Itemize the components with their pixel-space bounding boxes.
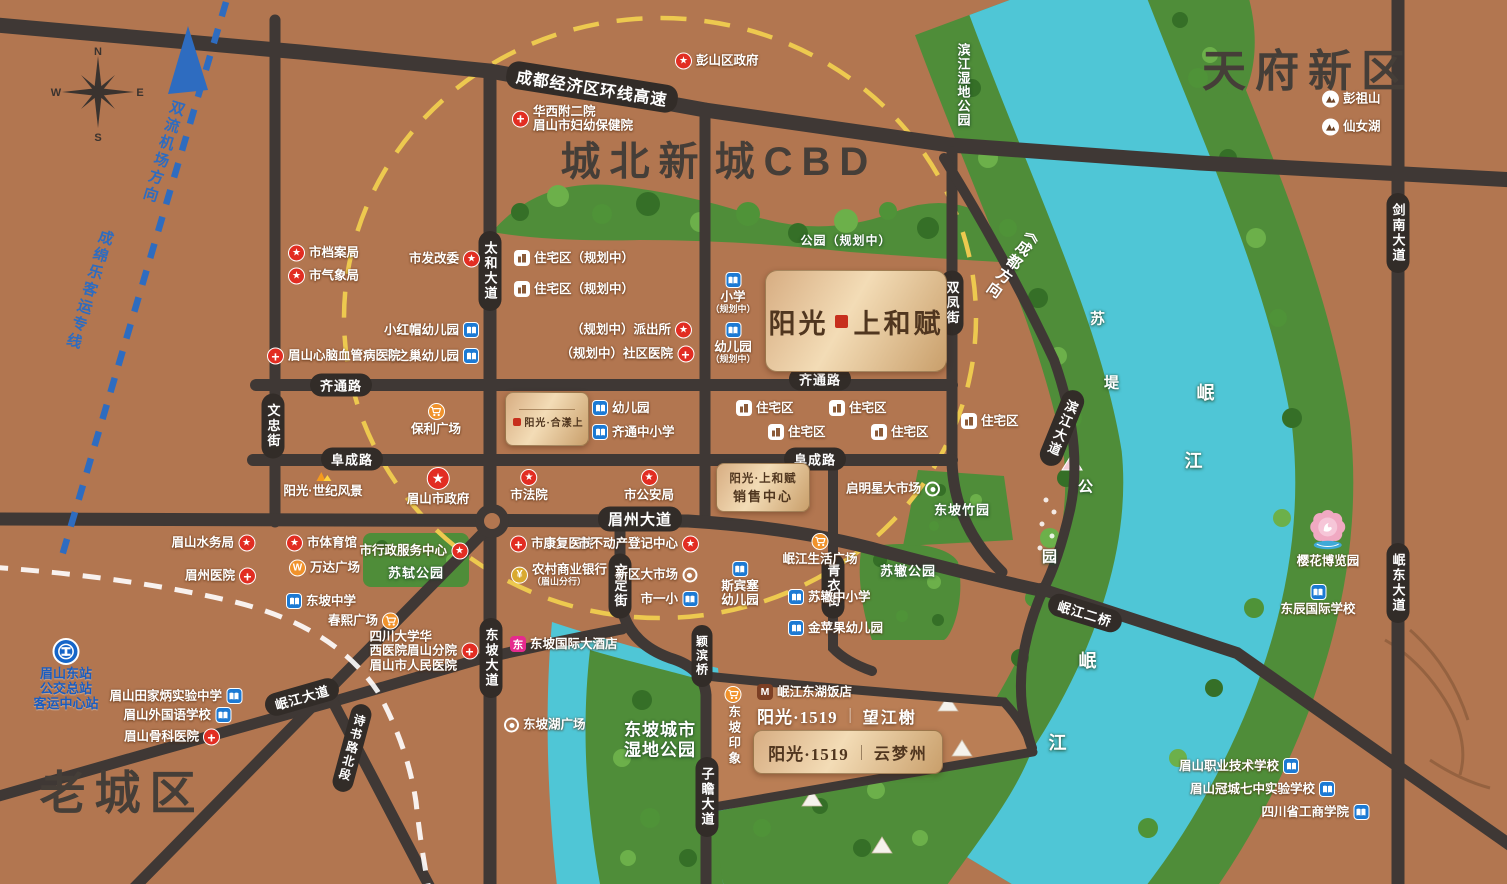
poi-label: 岷江生活广场 — [782, 552, 857, 566]
school-icon — [226, 688, 242, 704]
residence-icon — [514, 281, 530, 297]
school-icon — [463, 322, 479, 338]
road-label: 岷 — [1197, 379, 1216, 405]
poi-label: 市气象局 — [309, 269, 359, 283]
map-poi: 眉州医院+ — [185, 568, 256, 585]
shopping-cart-icon — [382, 613, 399, 630]
poi-label: 住宅区 — [891, 425, 929, 439]
map-poi: 幼儿园 — [592, 400, 650, 416]
poi-label: 万达广场 — [310, 561, 360, 575]
map-poi: 市行政服务中心★ — [359, 543, 468, 560]
road-label: 岷江大道 — [262, 675, 341, 718]
school-icon — [463, 348, 479, 364]
map-poi: 启明星大市场 — [846, 482, 940, 497]
school-icon — [1310, 584, 1326, 600]
plate-text: 上和赋 — [854, 302, 944, 341]
poi-label: 彭祖山 — [1343, 92, 1381, 106]
poi-label: 农村商业银行（眉山分行） — [532, 563, 607, 588]
map-poi: 眉山外国语学校 — [123, 707, 231, 723]
shopping-cart-icon — [811, 533, 828, 550]
road-label: 东坡大道 — [480, 618, 503, 698]
map-poi: 眉山田家炳实验中学 — [109, 688, 242, 704]
sunshine-logo-icon — [314, 470, 332, 482]
sales-center-plate: 阳光·上和赋 销售中心 — [716, 463, 810, 512]
poi-label: 启明星大市场 — [846, 482, 921, 496]
map-poi: 四川大学华西医院眉山分院眉山市人民医院+ — [369, 629, 478, 672]
poi-label: 东坡中学 — [306, 594, 356, 608]
road-label: 园 — [1042, 546, 1058, 567]
poi-label: 市公安局 — [624, 488, 674, 502]
map-poi: ¥农村商业银行（眉山分行） — [511, 563, 607, 588]
road-label: 子瞻大道 — [696, 757, 719, 837]
poi-label: 市不动产登记中心 — [578, 537, 678, 551]
map-poi: 小学（规划中） — [710, 272, 755, 315]
rail-corridor-label: 双流机场方向 — [137, 97, 189, 206]
map-poi: 彭祖山 — [1322, 91, 1381, 108]
poi-label: （规划中）社区医院 — [560, 347, 673, 361]
road-label: 公 — [1078, 476, 1094, 497]
divider: ｜ — [843, 705, 858, 726]
poi-label: 眉山心脑血管病医院 — [288, 349, 401, 363]
school-icon — [1353, 804, 1369, 820]
school-icon — [732, 561, 748, 577]
map-poi: ★市气象局 — [288, 268, 359, 285]
map-poi: 东坡印象 — [725, 686, 742, 767]
map-poi: ★彭山区政府 — [675, 53, 759, 70]
star-icon: ★ — [463, 251, 480, 268]
poi-label: 小红帽幼儿园 — [384, 323, 459, 337]
project-plate-yunmengzhou: 阳光·1519｜云梦州 — [753, 730, 943, 774]
map-poi: 岷江生活广场 — [782, 533, 857, 566]
road-label: 《成都方向 — [980, 221, 1046, 303]
school-icon — [682, 591, 698, 607]
plate-text: 阳光 — [769, 302, 829, 341]
star-icon: ★ — [426, 467, 449, 490]
poi-label: （规划中）派出所 — [571, 323, 671, 337]
rail-corridor-label: 成绵乐客运专线 — [61, 227, 118, 354]
poi-label: 眉山水务局 — [171, 536, 234, 550]
school-icon — [286, 593, 302, 609]
star-icon: ★ — [238, 535, 255, 552]
map-poi: （规划中）派出所★ — [571, 322, 692, 339]
brand-text: 阳光·1519 — [768, 740, 849, 765]
school-icon — [725, 272, 741, 288]
poi-label: 东坡国际大酒店 — [530, 637, 618, 651]
plate-text: 望江榭 — [863, 704, 917, 728]
road-label: 东坡竹园 — [934, 500, 990, 519]
map-poi: 春熙广场 — [328, 613, 399, 630]
brand-text: 阳光·1519 — [757, 703, 838, 728]
road-label: 齐通路 — [310, 374, 372, 397]
poi-label: 住宅区（规划中） — [534, 251, 634, 265]
mountain-icon — [1322, 119, 1339, 136]
road-label: 太和大道 — [479, 231, 502, 311]
map-poi: 保利广场 — [411, 403, 461, 436]
map-poi: ★市法院 — [510, 469, 548, 502]
hotel-icon: 东 — [510, 636, 526, 652]
road-label: 颖滨桥 — [692, 625, 713, 687]
map-poi: +眉山心脑血管病医院 — [267, 348, 401, 365]
poi-label: 眉州医院 — [185, 569, 235, 583]
map-poi: 斯宾塞幼儿园 — [721, 561, 759, 608]
bank-icon: ¥ — [511, 567, 528, 584]
plate-ornament — [519, 409, 575, 410]
star-icon: ★ — [640, 469, 657, 486]
poi-label: 斯宾塞幼儿园 — [721, 579, 759, 608]
residence-icon — [871, 424, 887, 440]
map-poi: 东坡中学 — [286, 593, 356, 609]
mountain-icon — [1322, 91, 1339, 108]
star-icon: ★ — [682, 536, 699, 553]
road-label: 江 — [1185, 447, 1204, 473]
region-label: 城CBD — [715, 129, 878, 187]
map-poi: 眉山职业技术学校 — [1179, 758, 1299, 774]
residence-icon — [768, 424, 784, 440]
plaza-target-icon — [925, 482, 940, 497]
school-icon — [788, 620, 804, 636]
residence-icon — [514, 250, 530, 266]
map-poi: 眉山东站公交总站客运中心站 — [33, 638, 98, 712]
road-label: 文忠街 — [262, 394, 285, 459]
road-label: 苏 — [1090, 308, 1106, 329]
map-poi: 四川省工商学院 — [1261, 804, 1369, 820]
map-poi: 金苹果幼儿园 — [788, 620, 883, 636]
map-poi: 小红帽幼儿园 — [384, 322, 479, 338]
poi-label: 市行政服务中心 — [359, 544, 447, 558]
map-poi: 眉山水务局★ — [171, 535, 255, 552]
poi-label: 齐通中小学 — [612, 425, 675, 439]
poi-label: 苏辙中小学 — [808, 590, 871, 604]
poi-label: 阳光·世纪风景 — [283, 484, 362, 498]
poi-label: 四川省工商学院 — [1261, 805, 1349, 819]
star-icon: ★ — [520, 469, 537, 486]
map-poi: （规划中）社区医院+ — [560, 346, 694, 363]
poi-label: 住宅区 — [849, 401, 887, 415]
map-poi: 住宅区（规划中） — [514, 281, 634, 297]
hotel-icon: M — [757, 684, 773, 700]
poi-label: 市一小 — [640, 592, 678, 606]
school-icon — [788, 589, 804, 605]
road-label: 江 — [1049, 729, 1068, 755]
road-label: 文定街 — [609, 554, 632, 619]
seal-icon — [835, 315, 848, 328]
map-poi: 住宅区（规划中） — [514, 250, 634, 266]
road-label: 滨江湿地公园 — [954, 43, 973, 127]
road-label: 堤 — [1104, 372, 1120, 393]
road-label: 阜成路 — [321, 448, 383, 471]
poi-label: 眉山骨科医院 — [124, 730, 199, 744]
map-poi: +华西附二院眉山市妇幼保健院 — [512, 105, 633, 134]
poi-label: 市档案局 — [309, 246, 359, 260]
plaza-target-icon — [682, 568, 697, 583]
railway-station-icon — [52, 638, 79, 665]
map-poi: 住宅区 — [829, 400, 887, 416]
map-poi: ★眉山市政府 — [407, 467, 470, 506]
poi-label: 仙女湖 — [1343, 120, 1381, 134]
project-plate-shanghefu: 阳光上和赋 — [765, 270, 947, 372]
map-poi: ★市公安局 — [624, 469, 674, 502]
map-poi: M岷江东湖饭店 — [757, 684, 852, 700]
school-icon — [592, 424, 608, 440]
poi-label: 眉山外国语学校 — [123, 708, 211, 722]
seal-icon — [513, 418, 521, 426]
school-icon — [725, 322, 741, 338]
poi-label: 住宅区 — [756, 401, 794, 415]
map-poi: 樱花博览园 — [1297, 510, 1360, 568]
road-label: 苏轼公园 — [388, 563, 444, 582]
poi-label: 住宅区（规划中） — [534, 282, 634, 296]
poi-label: 彭山区政府 — [696, 54, 759, 68]
star-icon: ★ — [286, 535, 303, 552]
map-poi: 住宅区 — [736, 400, 794, 416]
map-poi: 市一小 — [640, 591, 698, 607]
map-poi: 市发改委★ — [409, 251, 480, 268]
poi-label: 樱花博览园 — [1297, 554, 1360, 568]
poi-label: 住宅区 — [981, 414, 1019, 428]
hospital-cross-icon: + — [203, 729, 220, 746]
map-poi: 阳光·世纪风景 — [283, 470, 362, 498]
star-icon: ★ — [675, 53, 692, 70]
road-label: 苏辙公园 — [880, 561, 936, 580]
poi-label: 幼儿园 — [612, 401, 650, 415]
school-icon — [592, 400, 608, 416]
sakura-flower-icon — [1305, 510, 1351, 552]
hospital-cross-icon: + — [677, 346, 694, 363]
road-label: 诗书路北段 — [330, 702, 374, 794]
map-poi: 市不动产登记中心★ — [578, 536, 699, 553]
poi-label: 眉山职业技术学校 — [1179, 759, 1279, 773]
map-poi: 住宅区 — [871, 424, 929, 440]
project-plate-heyang: 阳光·合漾上 — [505, 392, 589, 446]
map-poi: W万达广场 — [289, 560, 360, 577]
road-label: 滨江大道 — [1036, 387, 1087, 470]
hospital-cross-icon: + — [461, 643, 478, 660]
plate-text: 销售中心 — [733, 486, 793, 505]
divider: ｜ — [854, 742, 869, 763]
poi-label: 市法院 — [510, 488, 548, 502]
poi-label: 眉山市政府 — [407, 492, 470, 506]
road-label: 岷江二桥 — [1045, 591, 1124, 635]
plaza-target-icon — [504, 718, 519, 733]
map-poi: 新区大市场 — [615, 568, 697, 583]
poi-label: 眉山冠城七中实验学校 — [1190, 782, 1315, 796]
wanda-plaza-icon: W — [289, 560, 306, 577]
residence-icon — [829, 400, 845, 416]
road-label: 眉州大道 — [598, 507, 682, 532]
hospital-cross-icon: + — [510, 536, 527, 553]
residence-icon — [736, 400, 752, 416]
region-label: 城北新 — [561, 129, 708, 187]
map-poi: 眉山冠城七中实验学校 — [1190, 781, 1335, 797]
poi-label: 眉山田家炳实验中学 — [109, 689, 222, 703]
poi-label: 新区大市场 — [615, 568, 678, 582]
hospital-cross-icon: + — [512, 111, 529, 128]
road-label: 岷 — [1079, 647, 1098, 673]
poi-label: 华西附二院眉山市妇幼保健院 — [533, 105, 633, 134]
poi-label: 市发改委 — [409, 252, 459, 266]
map-poi: 苏辙中小学 — [788, 589, 871, 605]
poi-label: 春熙广场 — [328, 614, 378, 628]
map-poi: ★市档案局 — [288, 245, 359, 262]
poi-label: 保利广场 — [411, 422, 461, 436]
hospital-cross-icon: + — [239, 568, 256, 585]
hospital-cross-icon: + — [267, 348, 284, 365]
shopping-cart-icon — [427, 403, 444, 420]
road-label: 湿地公园 — [624, 736, 696, 761]
map-canvas: N E S W 城北新城CBD天府新区老城区双流机场方向成绵乐客运专线成都经济区… — [0, 0, 1507, 884]
school-icon — [1319, 781, 1335, 797]
road-label: 公园（规划中） — [800, 232, 891, 249]
poi-label: 东坡印象 — [726, 705, 740, 767]
map-poi: 仙女湖 — [1322, 119, 1381, 136]
poi-label: 东辰国际学校 — [1280, 602, 1355, 616]
map-poi: 东辰国际学校 — [1280, 584, 1355, 616]
road-label: 剑南大道 — [1387, 193, 1410, 273]
map-poi: 住宅区 — [768, 424, 826, 440]
map-poi: 东坡湖广场 — [504, 718, 586, 733]
map-poi: 齐通中小学 — [592, 424, 675, 440]
region-label: 天府新区 — [1202, 35, 1414, 99]
poi-label: 四川大学华西医院眉山分院眉山市人民医院 — [369, 629, 457, 672]
poi-label: 市体育馆 — [307, 536, 357, 550]
map-poi: 眉山骨科医院+ — [124, 729, 220, 746]
star-icon: ★ — [451, 543, 468, 560]
map-poi: 东东坡国际大酒店 — [510, 636, 618, 652]
star-icon: ★ — [288, 245, 305, 262]
plate-text: 阳光·合漾上 — [524, 414, 583, 429]
project-logo-wangjiangxie: 阳光·1519｜望江榭 — [757, 703, 917, 728]
map-poi: 幼儿园（规划中） — [710, 322, 755, 365]
plate-text: 阳光·上和赋 — [729, 470, 796, 486]
road-label: 岷东大道 — [1387, 543, 1410, 623]
plate-text: 云梦州 — [874, 740, 928, 764]
poi-label: 金苹果幼儿园 — [808, 621, 883, 635]
poi-label: 眉山东站公交总站客运中心站 — [33, 667, 98, 712]
poi-label: 住宅区 — [788, 425, 826, 439]
school-icon — [215, 707, 231, 723]
poi-label: 岷江东湖饭店 — [777, 685, 852, 699]
star-icon: ★ — [288, 268, 305, 285]
star-icon: ★ — [675, 322, 692, 339]
map-poi: 住宅区 — [961, 413, 1019, 429]
poi-label: 东坡湖广场 — [523, 718, 586, 732]
map-poi: ★市体育馆 — [286, 535, 357, 552]
school-icon — [1283, 758, 1299, 774]
poi-label: 幼儿园（规划中） — [710, 340, 755, 365]
poi-label: 小学（规划中） — [710, 290, 755, 315]
region-label: 老城区 — [40, 757, 205, 823]
shopping-cart-icon — [725, 686, 742, 703]
residence-icon — [961, 413, 977, 429]
